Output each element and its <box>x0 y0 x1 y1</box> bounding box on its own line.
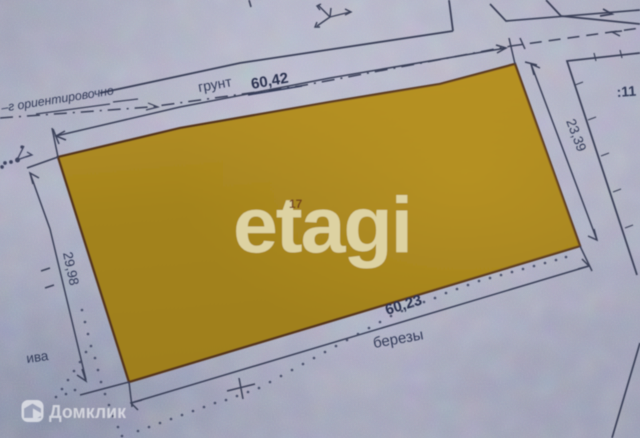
svg-text:etagi: etagi <box>233 180 411 269</box>
svg-text:17: 17 <box>289 197 303 211</box>
svg-text:Домклик: Домклик <box>49 401 127 422</box>
svg-text::11: :11 <box>616 83 637 100</box>
svg-text:ива: ива <box>25 348 49 366</box>
